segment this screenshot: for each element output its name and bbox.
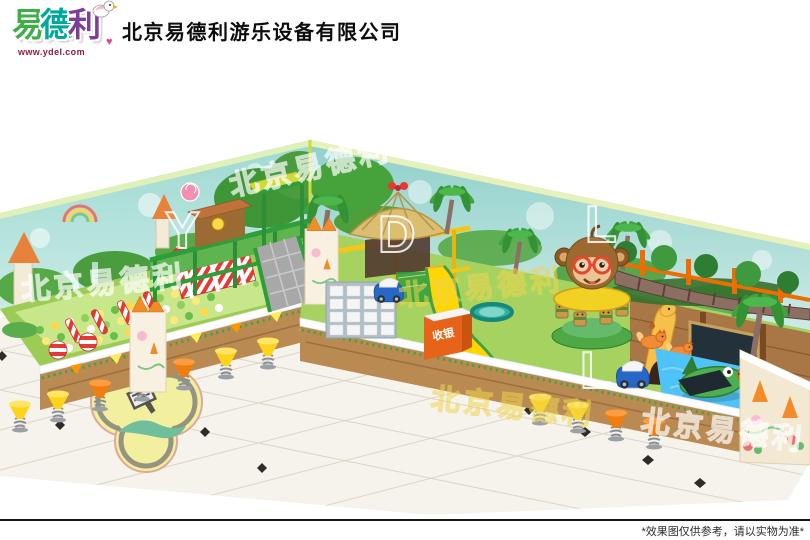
logo-wordmark: 易德利	[12, 8, 96, 41]
watermark-letter: Y	[165, 202, 200, 260]
toddler-pool	[472, 304, 512, 320]
page: 收银 北京易德利 北京易德利 北京易德利 北京易德利 北京易德利 Y D L L…	[0, 0, 810, 540]
logo-char: 易	[12, 6, 40, 43]
page-header: 易德利 ♥ www.ydel.com 北京易德利游乐设备有限公司	[0, 0, 810, 70]
logo-url: www.ydel.com	[18, 47, 85, 57]
watermark-letter: L	[580, 342, 612, 400]
logo-bird-icon	[90, 0, 118, 19]
castle-column	[130, 296, 166, 392]
company-title: 北京易德利游乐设备有限公司	[122, 16, 402, 45]
logo-char: 德	[40, 6, 68, 43]
watermark-letter: L	[585, 196, 617, 254]
watermark-letter: D	[378, 206, 416, 264]
logo-heart-icon: ♥	[106, 36, 113, 48]
company-logo: 易德利 ♥ www.ydel.com	[10, 2, 120, 64]
disclaimer-note: *效果图仅供参考，请以实物为准*	[641, 523, 804, 539]
playground-render: 收银 北京易德利 北京易德利 北京易德利 北京易德利 北京易德利 Y D L L	[0, 0, 810, 540]
footer-divider	[0, 519, 810, 521]
